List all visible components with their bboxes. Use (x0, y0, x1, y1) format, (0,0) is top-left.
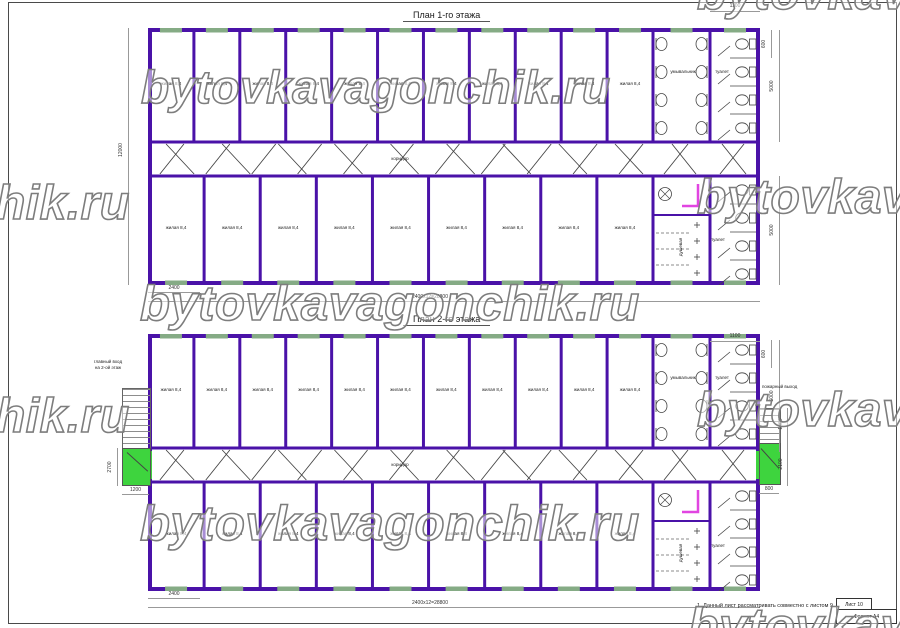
room-label: жилая 8,4 (549, 531, 589, 537)
room-label: жилая 8,4 (493, 225, 533, 231)
dim-line (117, 448, 118, 486)
room-label: жилая 8,4 (426, 81, 466, 87)
room-label: жилая 8,4 (472, 81, 512, 87)
dim-san-width: 1100 (717, 333, 753, 339)
dim-win: 600 (761, 29, 767, 59)
room-label: жилая 8,4 (197, 387, 237, 393)
room-label: жилая 8,4 (156, 531, 196, 537)
dim-line (128, 28, 129, 285)
room-label: жилая 8,4 (605, 531, 645, 537)
room-label: жилая 8,4 (518, 81, 558, 87)
room-label: жилая 8,4 (156, 225, 196, 231)
shower-label: душевая (678, 232, 684, 262)
dim-san-width: 1100 (717, 3, 753, 9)
door-swings-group (160, 144, 746, 174)
toilet-label: туалет (706, 69, 738, 75)
corridor-label: коридор (380, 462, 420, 468)
room-label: жилая 8,4 (381, 531, 421, 537)
room-label: жилая 8,4 (335, 81, 375, 87)
note-text: 1. Данный лист рассматривать совместно с… (697, 603, 835, 609)
dim-line (148, 607, 760, 608)
room-label: жилая 8,4 (151, 387, 191, 393)
plan-1-drawing (148, 28, 760, 285)
room-label: жилая 8,4 (212, 531, 252, 537)
fire-exit-label: пожарный выход (762, 384, 820, 390)
room-label: жилая 8,4 (472, 387, 512, 393)
dim-depth: 5000 (769, 71, 775, 101)
dim-line (759, 493, 779, 494)
room-label: жилая 8,4 (564, 387, 604, 393)
room-label: жилая 8,4 (493, 531, 533, 537)
plan-1-floorplan (148, 28, 760, 285)
room-label: жилая 8,4 (564, 81, 604, 87)
dim-line (787, 443, 788, 486)
walls-group (150, 336, 758, 589)
room-label: жилая 8,4 (212, 225, 252, 231)
room-label: жилая 8,4 (381, 225, 421, 231)
plan2-title: План 2-го этажа (403, 314, 490, 326)
washroom-label: умывальник (663, 69, 703, 75)
room-label: жилая 8,4 (610, 387, 650, 393)
dim-total: 2400x12=28800 (390, 600, 470, 606)
stamp-format-box: Формат А4 (836, 609, 897, 624)
dim-landing2-h: 2100 (778, 449, 784, 479)
room-label: жилая 8,4 (197, 81, 237, 87)
plan1-title: План 1-го этажа (403, 10, 490, 22)
dim-line (771, 340, 772, 368)
entrance-label: главный вход на 2-ой этаж (80, 359, 136, 371)
toilet-label: туалет (706, 375, 738, 381)
dim-line (710, 11, 760, 12)
stair-up-mark (682, 184, 698, 206)
shower-label: душевая (678, 538, 684, 568)
room-label: жилая 8,4 (437, 531, 477, 537)
room-label: жилая 8,4 (335, 387, 375, 393)
room-label: жилая 8,4 (243, 387, 283, 393)
dim-depth: 5000 (769, 215, 775, 245)
room-label: жилая 8,4 (381, 81, 421, 87)
dim-stair-run: 1400 (778, 409, 784, 439)
toilet-label: туалет (702, 237, 734, 243)
drawing-sheet: План 1-го этажа План 2-го этажа коридор … (0, 0, 900, 628)
room-label: жилая 8,4 (289, 387, 329, 393)
dim-line (148, 301, 760, 302)
dim-landing2-w: 800 (757, 486, 781, 492)
dim-line (779, 30, 780, 142)
room-label: жилая 8,4 (549, 225, 589, 231)
dim-module: 2400 (159, 285, 189, 291)
dim-line (787, 408, 788, 443)
entrance-stair-hatch (122, 388, 151, 450)
door-swings-group (160, 450, 746, 480)
plan-2-floorplan (148, 334, 760, 591)
dim-landing-w: 1200 (122, 487, 149, 493)
room-label: жилая 8,4 (610, 81, 650, 87)
dim-total: 2400x12=28800 (390, 294, 470, 300)
room-label: жилая 8,4 (268, 225, 308, 231)
dim-win: 600 (761, 339, 767, 369)
walls-group (150, 30, 758, 283)
dim-line (148, 292, 200, 293)
room-label: жилая 8,4 (381, 387, 421, 393)
dim-module: 2400 (159, 591, 189, 597)
room-label: жилая 8,4 (151, 81, 191, 87)
dim-line (710, 341, 760, 342)
room-label: жилая 8,4 (324, 225, 364, 231)
stair-up-mark (682, 490, 698, 512)
entrance-landing (122, 448, 151, 486)
washroom-label: умывальник (663, 375, 703, 381)
corridor-label: коридор (380, 156, 420, 162)
room-label: жилая 8,4 (426, 387, 466, 393)
plan-2-drawing (148, 334, 760, 591)
dim-landing-h: 2700 (107, 452, 113, 482)
dim-line (122, 494, 149, 495)
room-label: жилая 8,4 (437, 225, 477, 231)
dim-height: 12000 (118, 135, 124, 165)
dim-line (771, 30, 772, 58)
room-label: жилая 8,4 (289, 81, 329, 87)
room-label: жилая 8,4 (518, 387, 558, 393)
room-label: жилая 8,4 (268, 531, 308, 537)
toilet-label: туалет (702, 543, 734, 549)
room-label: жилая 8,4 (605, 225, 645, 231)
dim-line (148, 598, 200, 599)
room-label: жилая 8,4 (324, 531, 364, 537)
dim-line (779, 176, 780, 285)
room-label: жилая 8,4 (243, 81, 283, 87)
